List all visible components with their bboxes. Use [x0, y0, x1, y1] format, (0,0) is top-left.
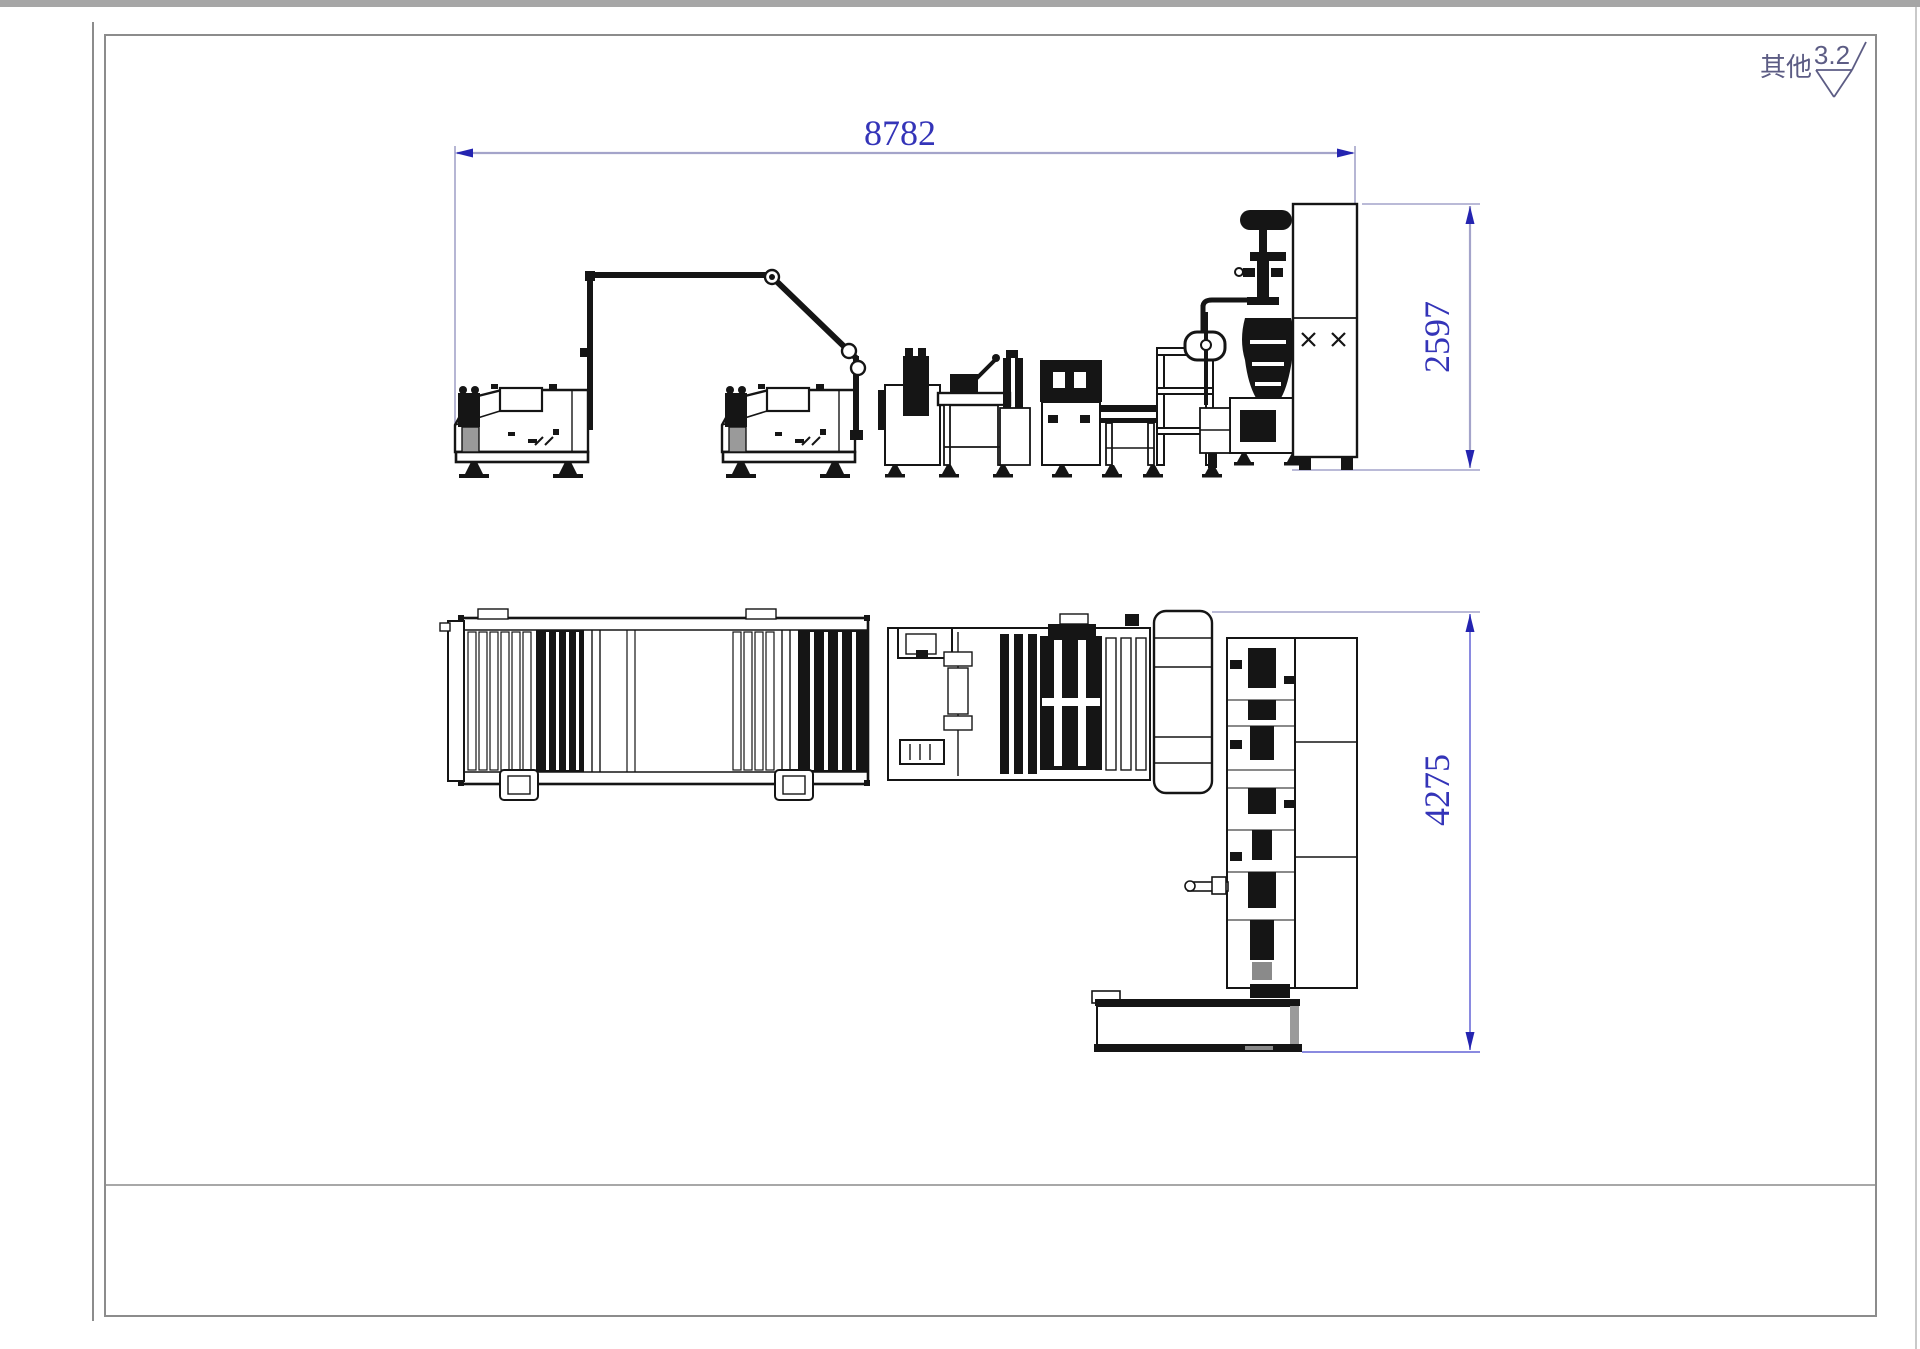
- plan-left-conveyor: [440, 609, 870, 800]
- dim-height-value: 2597: [1417, 301, 1457, 373]
- arrow-down-icon: [1466, 450, 1475, 468]
- plan-outfeed-conveyor: [1092, 984, 1302, 1052]
- filling-machine-2: [722, 384, 855, 478]
- plan-view: [440, 609, 1357, 1052]
- sheet-top-edge: [0, 0, 1920, 7]
- engineering-drawing-page: 其他 3.2 8782 2597 4275: [0, 0, 1920, 1349]
- arrow-down-icon: [1466, 1032, 1475, 1050]
- plan-mid-unit: [888, 614, 1150, 780]
- arrow-up-icon: [1466, 206, 1475, 224]
- arrow-left-icon: [455, 149, 473, 158]
- engineering-drawing: 其他 3.2 8782 2597 4275: [0, 0, 1920, 1349]
- filling-machine-1: [455, 384, 588, 478]
- roughness-value: 3.2: [1814, 40, 1850, 70]
- control-cabinet: [1293, 204, 1357, 470]
- surface-roughness-note: 其他 3.2: [1760, 40, 1866, 97]
- arrow-up-icon: [1466, 614, 1475, 632]
- other-label: 其他: [1760, 52, 1812, 82]
- dim-width-value: 8782: [864, 113, 936, 153]
- dim-depth-value: 4275: [1417, 754, 1457, 826]
- elevation-view: [455, 204, 1357, 478]
- arrow-right-icon: [1337, 149, 1355, 158]
- mid-process-units: [878, 300, 1248, 478]
- plan-elevator: [1154, 611, 1212, 793]
